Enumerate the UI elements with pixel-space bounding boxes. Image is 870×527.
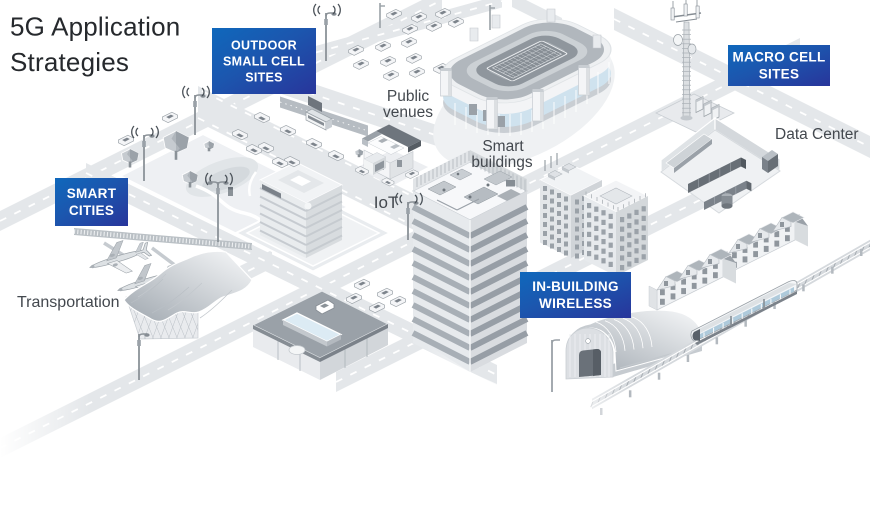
svg-text:venues: venues — [383, 104, 433, 121]
svg-text:SITES: SITES — [759, 67, 800, 82]
svg-text:Public: Public — [387, 88, 429, 105]
svg-text:SMALL CELL: SMALL CELL — [223, 54, 305, 68]
svg-text:Transportation: Transportation — [17, 294, 120, 311]
svg-text:buildings: buildings — [471, 154, 532, 171]
svg-text:IoT: IoT — [374, 193, 399, 212]
svg-text:IN-BUILDING: IN-BUILDING — [532, 279, 619, 294]
svg-text:5G Application: 5G Application — [10, 12, 180, 42]
svg-text:OUTDOOR: OUTDOOR — [231, 38, 297, 52]
svg-text:WIRELESS: WIRELESS — [539, 296, 612, 311]
svg-text:SITES: SITES — [245, 70, 283, 84]
svg-text:CITIES: CITIES — [69, 203, 114, 218]
svg-text:Data Center: Data Center — [775, 126, 859, 143]
svg-text:MACRO CELL: MACRO CELL — [733, 50, 826, 65]
svg-text:Smart: Smart — [482, 138, 524, 155]
svg-text:SMART: SMART — [67, 186, 117, 201]
svg-text:Strategies: Strategies — [10, 47, 129, 77]
